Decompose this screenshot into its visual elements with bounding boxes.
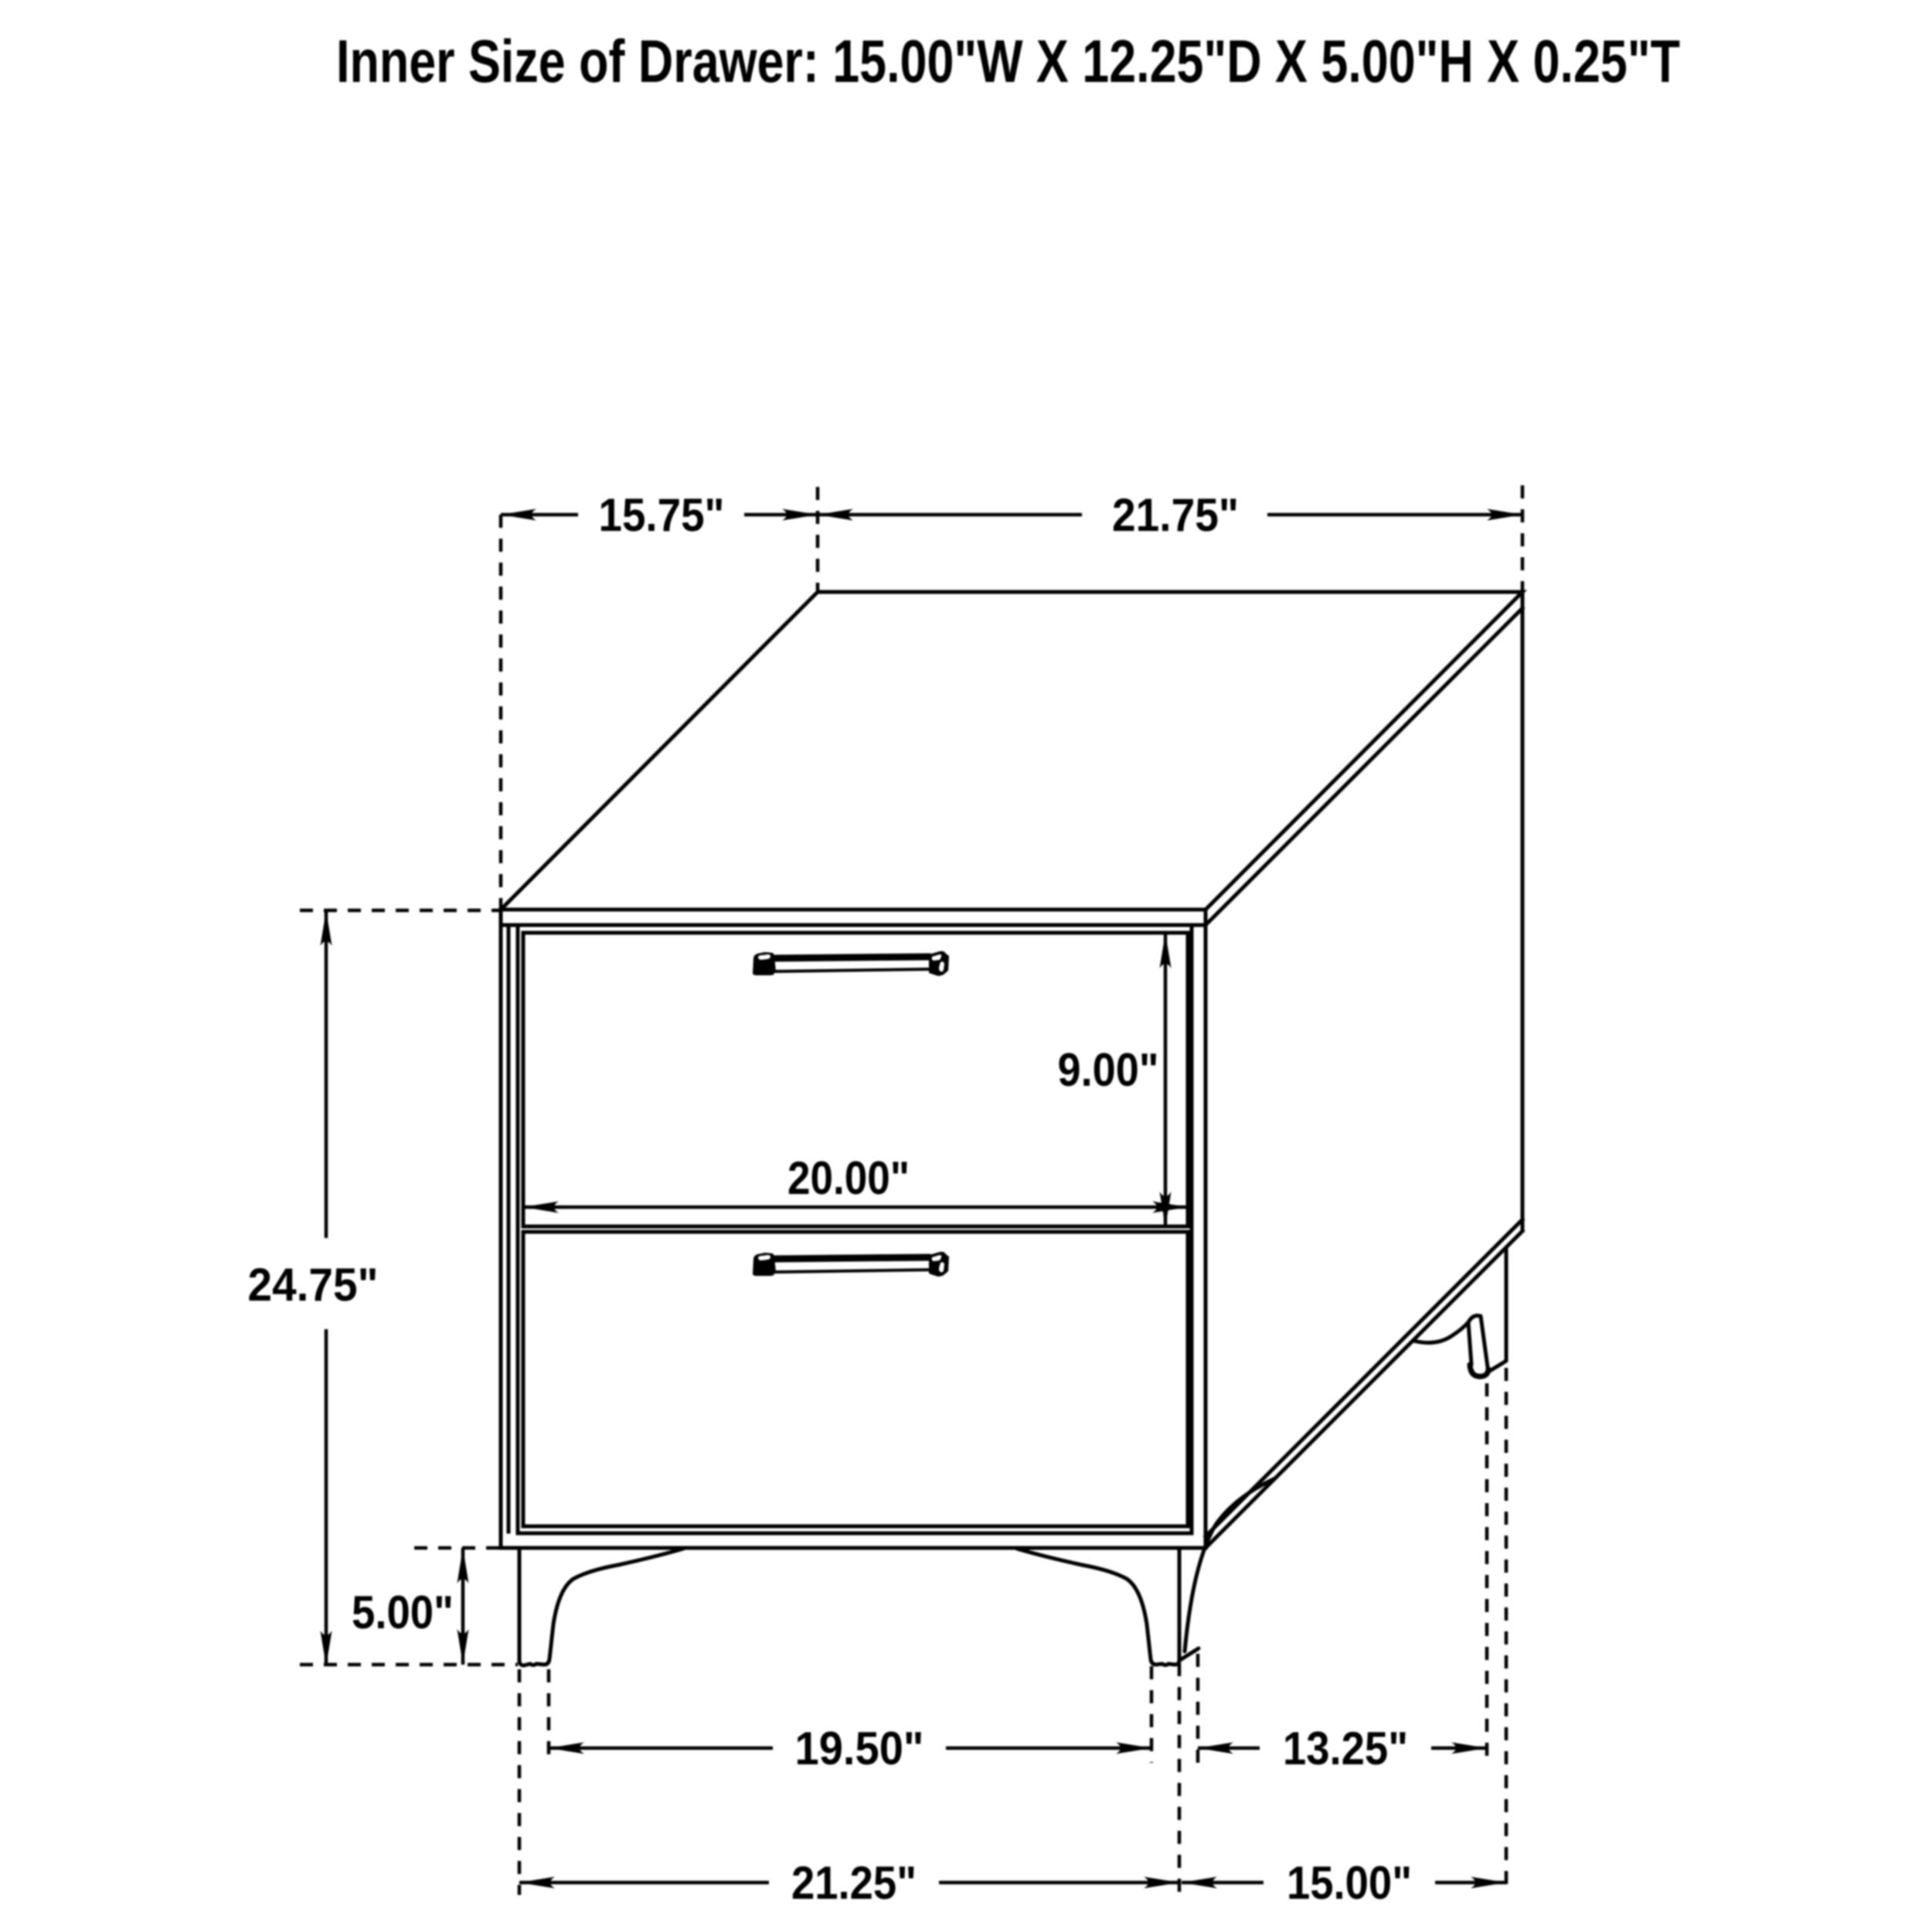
svg-text:9.00": 9.00" (1058, 1044, 1159, 1096)
svg-text:24.75": 24.75" (248, 1259, 379, 1311)
svg-text:20.00": 20.00" (787, 1152, 910, 1204)
svg-text:13.25": 13.25" (1283, 1723, 1408, 1774)
svg-text:Inner Size of Drawer: 15.00"W: Inner Size of Drawer: 15.00"W X 12.25"D … (336, 27, 1680, 95)
svg-text:5.00": 5.00" (352, 1587, 454, 1638)
svg-text:21.25": 21.25" (791, 1857, 917, 1909)
svg-text:19.50": 19.50" (795, 1723, 924, 1774)
svg-text:21.75": 21.75" (1112, 489, 1239, 541)
svg-text:15.00": 15.00" (1287, 1857, 1412, 1909)
svg-text:15.75": 15.75" (599, 489, 725, 541)
